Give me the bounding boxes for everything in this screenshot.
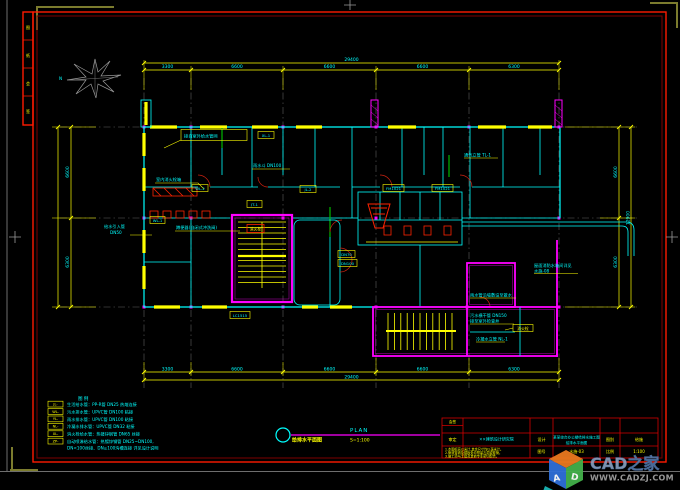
- dim-text: 6300: [508, 64, 520, 70]
- tag: XL-1: [262, 133, 271, 138]
- legend-code: YL-: [53, 417, 59, 421]
- dim-text: 6300: [613, 256, 619, 268]
- annotations: 接自室外给水管网 雨水斗 DN100 室内消火栓箱 给水引入管 DN50 蹲便器…: [104, 130, 572, 343]
- dim-text: 6300: [508, 366, 520, 372]
- tag: JT-1: [250, 202, 258, 207]
- strip-cell: 纸: [26, 52, 30, 58]
- dim-text: 6600: [324, 64, 336, 70]
- note-label: 通气立管 TL-1: [464, 152, 491, 159]
- tag: JL-2: [304, 187, 313, 192]
- walls: [144, 127, 560, 307]
- tag: 消火栓: [517, 326, 529, 331]
- legend-desc: 污水排水管：UPVC管 DN100 粘接: [67, 408, 134, 415]
- washroom-left: [150, 188, 210, 218]
- dim-text: 3300: [162, 64, 174, 70]
- dim-text: 6600: [324, 366, 336, 372]
- tb-drawing: 给排水平面图: [566, 440, 588, 445]
- note-label: 雨水斗 DN100: [253, 162, 282, 169]
- cad-canvas: 图 纸 会 签 N 3300 6600 6600 6600 6300 29400…: [0, 0, 680, 490]
- note-label: 室内消火栓箱: [156, 176, 181, 183]
- legend: 图 例 JL-生活给水管：PP-R管 DN25 热熔连接 WL-污水排水管：UP…: [48, 395, 159, 452]
- watermark-brand: CAD之家: [590, 454, 660, 473]
- dim-text: 6300: [65, 256, 71, 268]
- tag: DN100: [341, 261, 355, 266]
- note-label: 冷凝水立管 NL-1: [476, 336, 508, 343]
- note-label: 给水引入管: [104, 223, 125, 230]
- watermark: A D CAD之家 WWW.CADZJ.COM: [542, 450, 674, 490]
- cad-logo-icon: A D: [542, 450, 583, 490]
- tag: DN70: [341, 252, 352, 257]
- title-bubble-icon: [276, 428, 290, 442]
- watermark-url: WWW.CADZJ.COM: [590, 474, 674, 483]
- legend-desc: 消火栓给水管：热镀锌钢管 DN65 丝接: [67, 431, 141, 438]
- strip-cell: 签: [26, 108, 30, 114]
- dim-text: 6600: [417, 366, 429, 372]
- riser-shafts: [141, 100, 562, 127]
- title-scale: S=1:100: [350, 438, 370, 444]
- dim-text: 3300: [162, 366, 174, 372]
- tb-note: 3.施工须与土建及其他专业密切配合。: [445, 454, 499, 459]
- dim-text: 6600: [231, 64, 243, 70]
- center-marks: [9, 0, 678, 243]
- leader-lines: [130, 140, 578, 342]
- dim-text: 6600: [613, 166, 619, 178]
- tag: WL-1: [153, 218, 163, 223]
- legend-desc-cont: DN<100丝接、DN≥100沟槽连接 详见设计说明: [67, 445, 159, 452]
- legend-code: WL-: [52, 410, 59, 414]
- equipment-tags: XL-1 WL-2 JL-2 DN70 DN100 FM1021 FM1021 …: [150, 132, 533, 332]
- tb-huiqian: 会签: [449, 419, 457, 424]
- dimensions: 3300 6600 6600 6600 6300 29400 3300 6600…: [52, 57, 635, 382]
- tb-shending: 审定: [449, 436, 457, 442]
- note-label: 水施-08: [534, 268, 550, 275]
- tb-tubie: 图别: [606, 436, 614, 442]
- tb-sheji: 设计: [538, 436, 546, 442]
- tag: FM1021: [435, 186, 451, 191]
- dim-text: 6600: [231, 366, 243, 372]
- dim-text: 6600: [417, 64, 429, 70]
- note-label: 接至室外检查井: [470, 318, 499, 325]
- legend-desc: 自动喷淋给水管：热镀锌钢管 DN25~DN100,: [67, 438, 154, 445]
- floor-drain-funnel: [368, 204, 390, 228]
- pipe-runs: [462, 222, 634, 256]
- drawing-title: 给排水平面图 PLAN S=1:100: [276, 428, 440, 444]
- title-block: 会签 审定 ××建筑设计研究院 设计 某某综合办公楼给排水施工图 给排水平面图 …: [442, 418, 658, 459]
- legend-desc: 雨水排水管：UPVC管 DN100 粘接: [67, 416, 134, 423]
- note-label: 蹲便器(自闭式冲洗阀): [176, 224, 217, 231]
- tb-tubie-v: 给施: [635, 436, 643, 442]
- tag: WL-2: [195, 186, 205, 191]
- legend-code: JL-: [52, 402, 58, 406]
- note-label: 接自室外给水管网: [184, 133, 218, 140]
- north-arrow-icon: N: [59, 59, 121, 98]
- legend-code: NL-: [53, 425, 60, 429]
- stair-block-bottom: [373, 240, 557, 357]
- tag: LC1515: [233, 313, 248, 318]
- strip-cell: 图: [26, 24, 30, 30]
- note-label: DN50: [110, 230, 122, 235]
- tb-tuhao: 图号: [538, 448, 546, 454]
- legend-code: XL-: [53, 432, 59, 436]
- legend-desc: 冷凝水排水管：UPVC管 DN32 粘接: [67, 423, 135, 430]
- toilet-block-center: [358, 192, 462, 245]
- tb-company: ××建筑设计研究院: [479, 436, 514, 442]
- legend-code: ZP-: [53, 439, 59, 443]
- tag: 消火栓: [250, 227, 262, 232]
- dim-text: 6600: [65, 166, 71, 178]
- dim-total: 29400: [344, 374, 358, 380]
- title-cn: 给排水平面图: [292, 437, 322, 444]
- north-label: N: [59, 76, 62, 81]
- tb-project: 某某综合办公楼给排水施工图: [553, 435, 600, 440]
- tag: FM1021: [386, 186, 402, 191]
- cad-drawing-sheet: 图 纸 会 签 N 3300 6600 6600 6600 6300 29400…: [0, 0, 680, 490]
- legend-title: 图 例: [78, 395, 89, 402]
- strip-cell: 会: [26, 80, 30, 86]
- title-en: PLAN: [350, 428, 368, 434]
- note-label: 雨水管沿墙敷设至散水: [470, 292, 513, 299]
- grid-nodes: [143, 126, 561, 309]
- dim-total: 29400: [344, 57, 358, 63]
- legend-desc: 生活给水管：PP-R管 DN25 热熔连接: [67, 401, 138, 408]
